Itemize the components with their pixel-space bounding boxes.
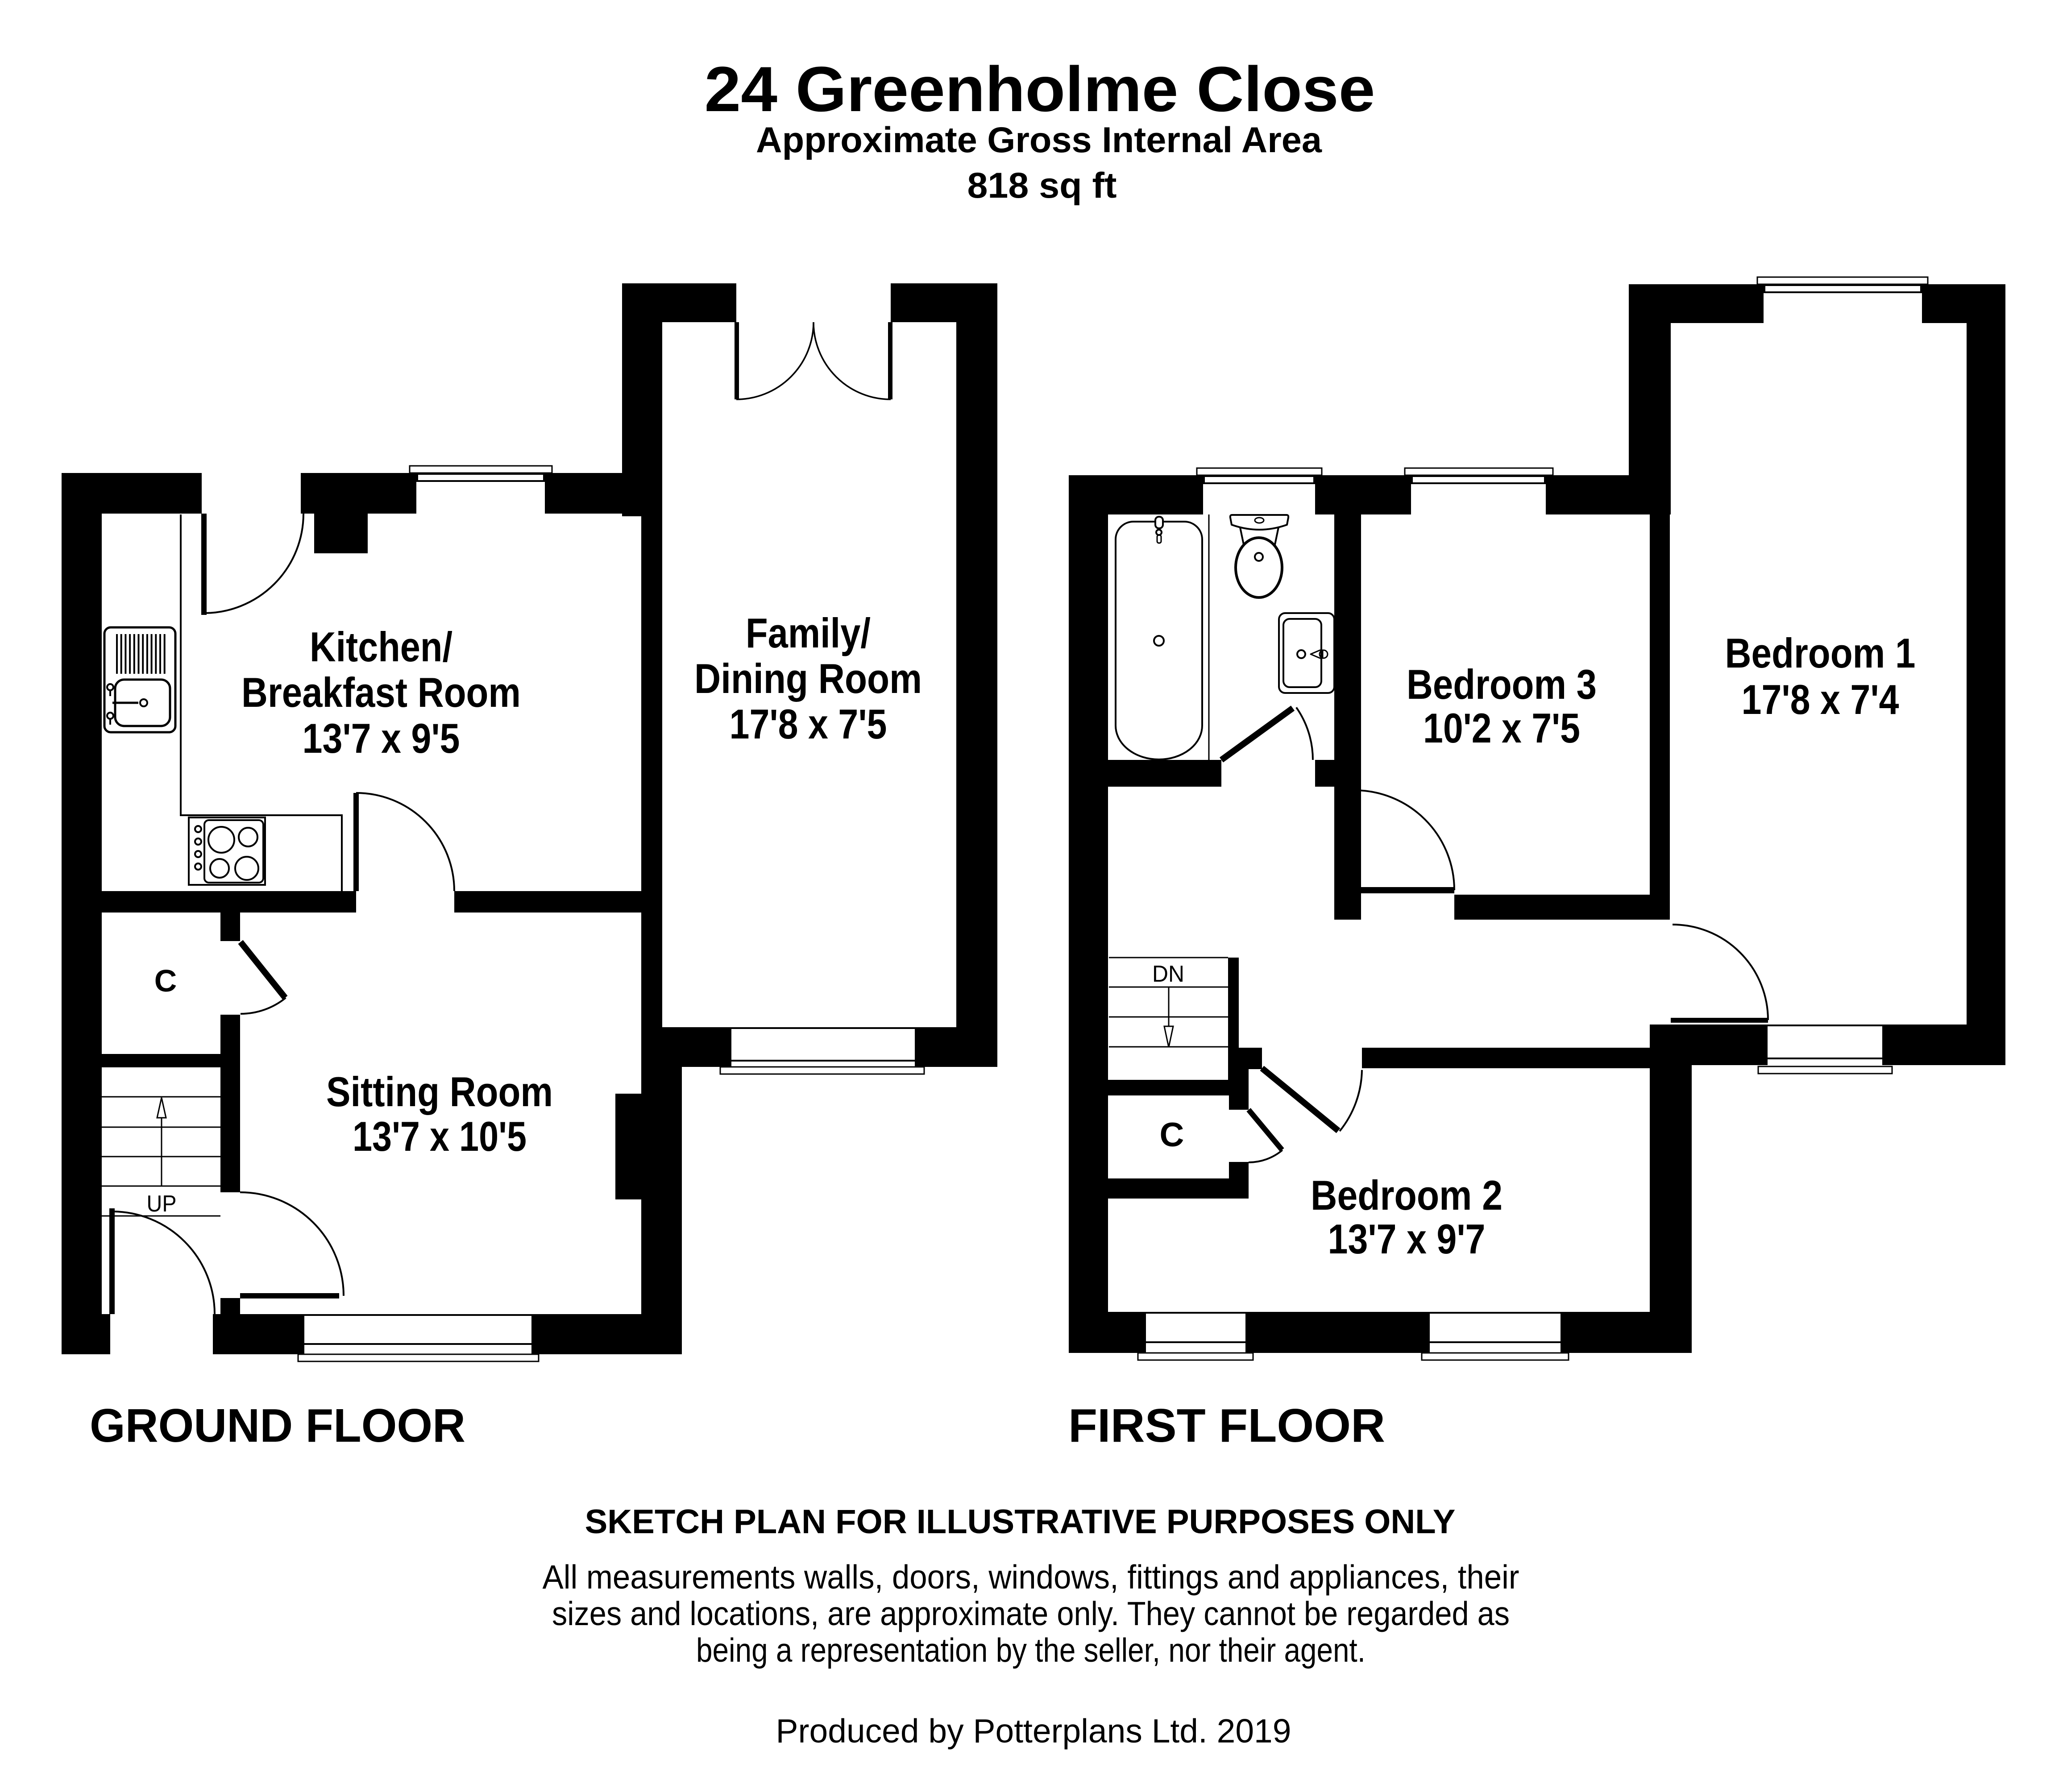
svg-text:24 Greenholme Close: 24 Greenholme Close [705, 54, 1375, 125]
svg-text:17'8 x 7'5: 17'8 x 7'5 [730, 701, 887, 747]
svg-text:C: C [1160, 1116, 1184, 1154]
svg-text:Breakfast Room: Breakfast Room [241, 669, 521, 716]
svg-text:UP: UP [147, 1191, 177, 1217]
svg-text:FIRST FLOOR: FIRST FLOOR [1068, 1399, 1385, 1452]
svg-text:10'2 x 7'5: 10'2 x 7'5 [1423, 705, 1580, 751]
svg-text:13'7 x 9'7: 13'7 x 9'7 [1328, 1215, 1486, 1262]
svg-text:GROUND FLOOR: GROUND FLOOR [90, 1399, 465, 1452]
svg-text:DN: DN [1152, 961, 1184, 987]
svg-text:13'7 x 9'5: 13'7 x 9'5 [303, 715, 460, 762]
svg-text:17'8 x 7'4: 17'8 x 7'4 [1742, 676, 1899, 723]
svg-text:Family/: Family/ [746, 610, 871, 656]
svg-text:being a representation by the: being a representation by the seller, no… [696, 1631, 1366, 1669]
svg-text:Kitchen/: Kitchen/ [310, 623, 452, 670]
svg-text:818 sq ft: 818 sq ft [967, 166, 1117, 206]
svg-text:Approximate Gross Internal Are: Approximate Gross Internal Area [756, 120, 1322, 160]
svg-text:All measurements walls, doors,: All measurements walls, doors, windows, … [543, 1558, 1519, 1596]
svg-text:sizes and locations, are appro: sizes and locations, are approximate onl… [552, 1595, 1510, 1632]
svg-text:Bedroom 3: Bedroom 3 [1407, 661, 1597, 708]
svg-text:C: C [154, 963, 177, 998]
svg-text:Bedroom 1: Bedroom 1 [1725, 630, 1916, 676]
svg-text:SKETCH PLAN FOR ILLUSTRATIVE P: SKETCH PLAN FOR ILLUSTRATIVE PURPOSES ON… [585, 1503, 1456, 1541]
svg-text:Dining Room: Dining Room [694, 655, 922, 702]
svg-text:Sitting Room: Sitting Room [326, 1068, 553, 1115]
svg-text:Produced by Potterplans Ltd. 2: Produced by Potterplans Ltd. 2019 [776, 1712, 1291, 1750]
svg-text:Bedroom 2: Bedroom 2 [1311, 1172, 1503, 1219]
svg-text:13'7 x 10'5: 13'7 x 10'5 [353, 1113, 527, 1160]
